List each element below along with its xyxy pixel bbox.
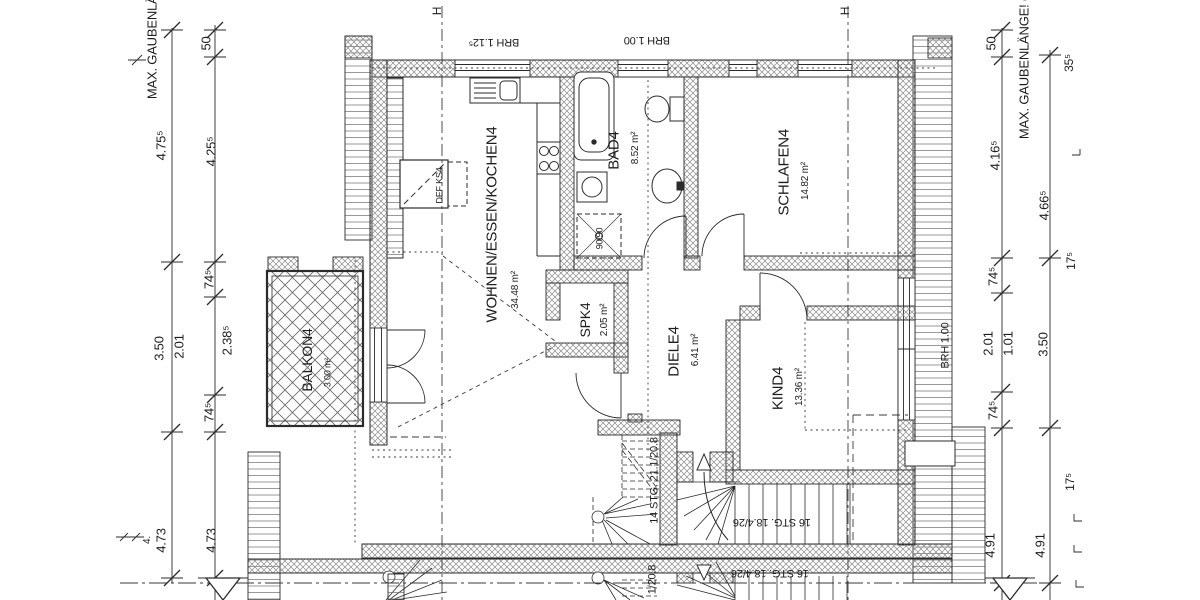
dim-label: 50	[200, 33, 213, 55]
room-label-child: KIND4	[771, 365, 786, 413]
balcony-deck	[267, 271, 363, 426]
bath-door	[644, 216, 686, 258]
dim-label: 4.25⁵	[205, 129, 218, 175]
stair-label: 16 STG. 18.4/26	[720, 567, 820, 578]
child-door	[760, 273, 807, 320]
dim-label: 4.73	[205, 523, 218, 559]
section-triangle-icon	[206, 578, 240, 600]
hall-door	[576, 373, 621, 418]
stair-label: 14 STG. 21.1/20.8	[650, 427, 661, 535]
sill-height-label: BRH 1.12⁵	[462, 36, 526, 47]
section-markers	[198, 578, 1035, 600]
room-area: 8.52 m²	[631, 124, 641, 172]
dim-label: 35⁵	[1063, 50, 1075, 76]
dim-label: 4.91	[1034, 528, 1047, 564]
room-area: 14.82 m²	[801, 155, 811, 207]
stair-label: 1/20.8	[648, 558, 659, 600]
room-label-bedroom: SCHLAFEN4	[777, 130, 792, 216]
h-axis-marker: H	[839, 4, 851, 18]
sill-height-label: BRH 1.00	[941, 317, 952, 375]
dim-label: 50	[985, 33, 998, 55]
room-label-pantry: SPK4	[578, 299, 592, 341]
floor-plan: MAX. GAUBENLÄNGE MAX. GAUBENLÄNGE! (1 H …	[0, 0, 1200, 600]
dim-label: 1.01	[1002, 326, 1015, 362]
dim-label: 4.75⁵	[155, 123, 168, 169]
shower-size-label: 90/90	[596, 222, 605, 256]
dim-label: 4.16⁵	[989, 133, 1002, 179]
room-area: 13.36 m²	[795, 361, 805, 413]
dim-label: 4.66⁵	[1038, 183, 1051, 229]
room-label-bath: BAD4	[607, 128, 622, 174]
dim-label: 2.38⁵	[221, 319, 234, 363]
bathroom-fixtures	[574, 72, 684, 258]
stair-label: 16 STG. 18.4/26	[722, 516, 822, 527]
dim-label: 4.73	[155, 523, 168, 559]
section-triangle-icon	[993, 578, 1027, 600]
dim-label: 74⁵	[203, 267, 216, 293]
sill-height-label: BRH 1.00	[618, 34, 676, 45]
right-roof-note: MAX. GAUBENLÄNGE! (1	[1018, 0, 1031, 150]
dormer-box	[905, 441, 955, 466]
balcony-door	[387, 330, 425, 368]
kitchen-fixtures	[387, 78, 560, 258]
left-roof-note: MAX. GAUBENLÄNGE	[146, 0, 159, 109]
dim-label: 3.50	[153, 331, 166, 367]
dim-label: 74⁵	[203, 400, 216, 426]
dim-label: 17⁵	[1064, 471, 1076, 493]
windows	[370, 60, 915, 420]
room-area: 2.05 m²	[600, 296, 610, 344]
dim-label: 2.01	[982, 326, 995, 362]
room-label-balcony: BALKON4	[300, 327, 314, 393]
room-area: 34.48 m²	[511, 264, 521, 316]
dim-label: 2.01	[173, 329, 186, 365]
dim-label: 17⁵	[1065, 250, 1077, 272]
dim-label: 4.	[143, 532, 153, 548]
dim-label: 3.50	[1037, 327, 1050, 363]
room-label-living: WOHNEN/ESSEN/KOCHEN4	[485, 137, 500, 323]
room-label-hall: DIELE4	[667, 324, 682, 380]
room-area: 6.41 m²	[691, 327, 701, 373]
toilet-icon	[670, 97, 684, 121]
stair-up-arrow-icon	[697, 454, 711, 470]
bedroom-door	[702, 214, 744, 256]
room-area: 3.00 m²	[324, 351, 333, 395]
dim-label: 74⁵	[987, 264, 1000, 290]
roof-window-label: DEF KS4	[436, 164, 445, 208]
dim-label: 4.91	[984, 528, 997, 564]
h-axis-marker: H	[431, 4, 443, 18]
dim-label: 74⁵	[987, 398, 1000, 424]
